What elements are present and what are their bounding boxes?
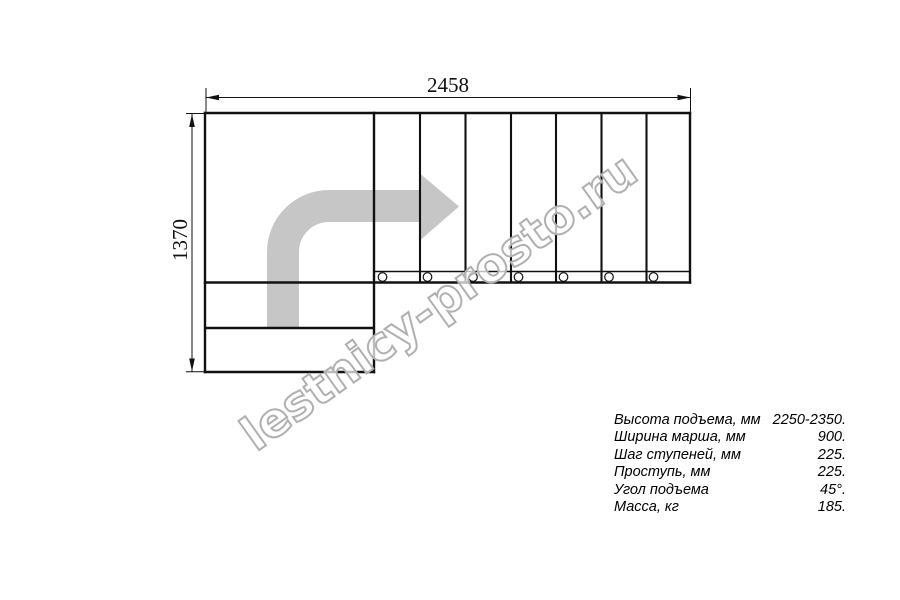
spec-row: Масса, кг 185. xyxy=(614,499,846,516)
spec-label: Высота подъема, мм xyxy=(614,412,761,429)
dimension-arrow-bottom xyxy=(189,359,195,372)
spec-row: Угол подъема 45°. xyxy=(614,482,846,499)
baluster-circle xyxy=(649,273,658,282)
dimension-arrow-left xyxy=(206,95,219,101)
dimension-arrow-right xyxy=(678,95,691,101)
width-dimension: 2458 xyxy=(206,73,691,112)
spec-row: Шаг ступеней, мм 225. xyxy=(614,447,846,464)
spec-label: Масса, кг xyxy=(614,499,679,516)
spec-value: 2250-2350. xyxy=(773,412,846,429)
height-dimension: 1370 xyxy=(168,114,206,372)
staircase-plan-screenshot: 2458 1370 lestnicy-prosto.ru Высота подъ… xyxy=(0,0,900,600)
baluster-circle xyxy=(559,273,568,282)
width-dimension-label: 2458 xyxy=(427,73,469,97)
spec-value: 45°. xyxy=(820,482,846,499)
baluster-circle xyxy=(605,273,614,282)
dimension-arrow-top xyxy=(189,114,195,127)
spec-value: 900. xyxy=(818,429,846,446)
specs-table: Высота подъема, мм 2250-2350. Ширина мар… xyxy=(614,412,846,516)
spec-row: Ширина марша, мм 900. xyxy=(614,429,846,446)
height-dimension-label: 1370 xyxy=(168,219,192,261)
spec-row: Высота подъема, мм 2250-2350. xyxy=(614,412,846,429)
spec-value: 225. xyxy=(818,447,846,464)
spec-label: Проступь, мм xyxy=(614,464,710,481)
spec-label: Шаг ступеней, мм xyxy=(614,447,741,464)
spec-value: 225. xyxy=(818,464,846,481)
baluster-circle xyxy=(378,273,387,282)
spec-row: Проступь, мм 225. xyxy=(614,464,846,481)
spec-value: 185. xyxy=(818,499,846,516)
spec-label: Ширина марша, мм xyxy=(614,429,746,446)
direction-arrow-head xyxy=(421,175,459,240)
spec-label: Угол подъема xyxy=(614,482,709,499)
